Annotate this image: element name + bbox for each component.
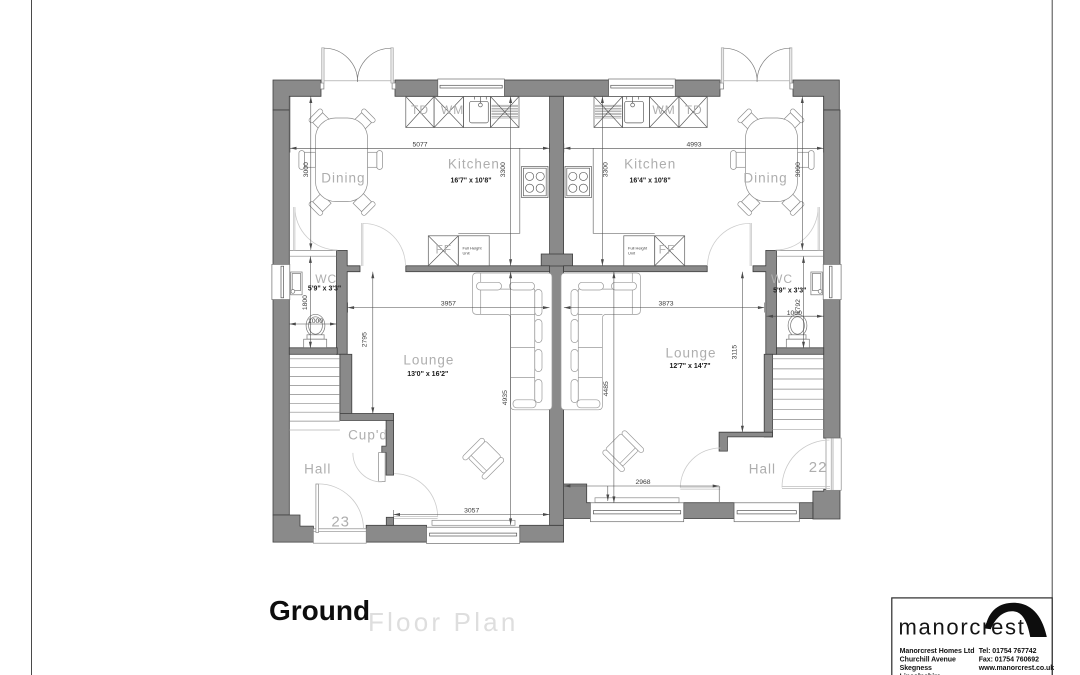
svg-text:13'0" x 16'2": 13'0" x 16'2" bbox=[407, 371, 448, 378]
svg-text:5077: 5077 bbox=[412, 142, 427, 149]
svg-text:12'7" x 14'7": 12'7" x 14'7" bbox=[669, 363, 710, 370]
svg-text:3057: 3057 bbox=[464, 507, 479, 514]
svg-text:1000: 1000 bbox=[308, 318, 323, 325]
svg-text:WC: WC bbox=[315, 272, 337, 286]
svg-text:Churchill Avenue: Churchill Avenue bbox=[900, 656, 956, 663]
svg-text:FF: FF bbox=[659, 242, 676, 256]
svg-text:1000: 1000 bbox=[787, 310, 802, 317]
svg-text:3115: 3115 bbox=[732, 345, 739, 360]
svg-text:16'7" x 10'8": 16'7" x 10'8" bbox=[450, 177, 491, 184]
svg-text:5'9" x 3'3": 5'9" x 3'3" bbox=[773, 287, 806, 294]
svg-text:TD: TD bbox=[685, 103, 703, 117]
svg-text:5'9" x 3'3": 5'9" x 3'3" bbox=[308, 285, 341, 292]
svg-text:2795: 2795 bbox=[362, 332, 369, 347]
svg-text:Fax: 01754 760692: Fax: 01754 760692 bbox=[979, 656, 1039, 663]
svg-text:Dining: Dining bbox=[743, 171, 787, 186]
svg-text:Lounge: Lounge bbox=[665, 346, 716, 361]
svg-text:Hall: Hall bbox=[304, 461, 331, 476]
svg-text:Skegness: Skegness bbox=[900, 665, 932, 672]
svg-text:4935: 4935 bbox=[502, 390, 509, 405]
svg-text:Hall: Hall bbox=[749, 461, 776, 476]
svg-text:Floor Plan: Floor Plan bbox=[368, 607, 519, 637]
svg-text:Kitchen: Kitchen bbox=[448, 156, 500, 171]
svg-text:3000: 3000 bbox=[795, 162, 802, 177]
svg-text:TD: TD bbox=[411, 103, 429, 117]
svg-text:Ground: Ground bbox=[269, 595, 370, 626]
svg-text:Dining: Dining bbox=[321, 171, 365, 186]
svg-text:3300: 3300 bbox=[603, 162, 610, 177]
svg-text:Kitchen: Kitchen bbox=[624, 156, 676, 171]
svg-text:1800: 1800 bbox=[302, 295, 309, 310]
svg-text:3300: 3300 bbox=[500, 162, 507, 177]
svg-text:WC: WC bbox=[771, 272, 793, 286]
svg-text:FF: FF bbox=[435, 242, 452, 256]
svg-text:Unit: Unit bbox=[463, 251, 471, 256]
svg-text:16'4" x 10'8": 16'4" x 10'8" bbox=[630, 177, 671, 184]
svg-text:3000: 3000 bbox=[303, 162, 310, 177]
svg-text:2968: 2968 bbox=[635, 479, 650, 486]
svg-text:Manorcrest Homes Ltd: Manorcrest Homes Ltd bbox=[900, 648, 975, 655]
svg-text:WM: WM bbox=[441, 103, 464, 117]
svg-text:Lounge: Lounge bbox=[403, 353, 454, 368]
svg-text:Cup'd: Cup'd bbox=[348, 427, 388, 442]
svg-text:Tel: 01754 767742: Tel: 01754 767742 bbox=[979, 648, 1037, 655]
svg-text:manorcrest: manorcrest bbox=[899, 615, 1026, 640]
svg-text:Unit: Unit bbox=[628, 251, 636, 256]
svg-text:4485: 4485 bbox=[603, 381, 610, 396]
svg-text:3957: 3957 bbox=[441, 300, 456, 307]
svg-text:4993: 4993 bbox=[686, 142, 701, 149]
svg-text:www.manorcrest.co.uk: www.manorcrest.co.uk bbox=[978, 665, 1055, 672]
svg-text:22: 22 bbox=[809, 459, 828, 476]
svg-text:3873: 3873 bbox=[658, 300, 673, 307]
svg-text:23: 23 bbox=[331, 514, 350, 531]
svg-text:WM: WM bbox=[652, 103, 675, 117]
